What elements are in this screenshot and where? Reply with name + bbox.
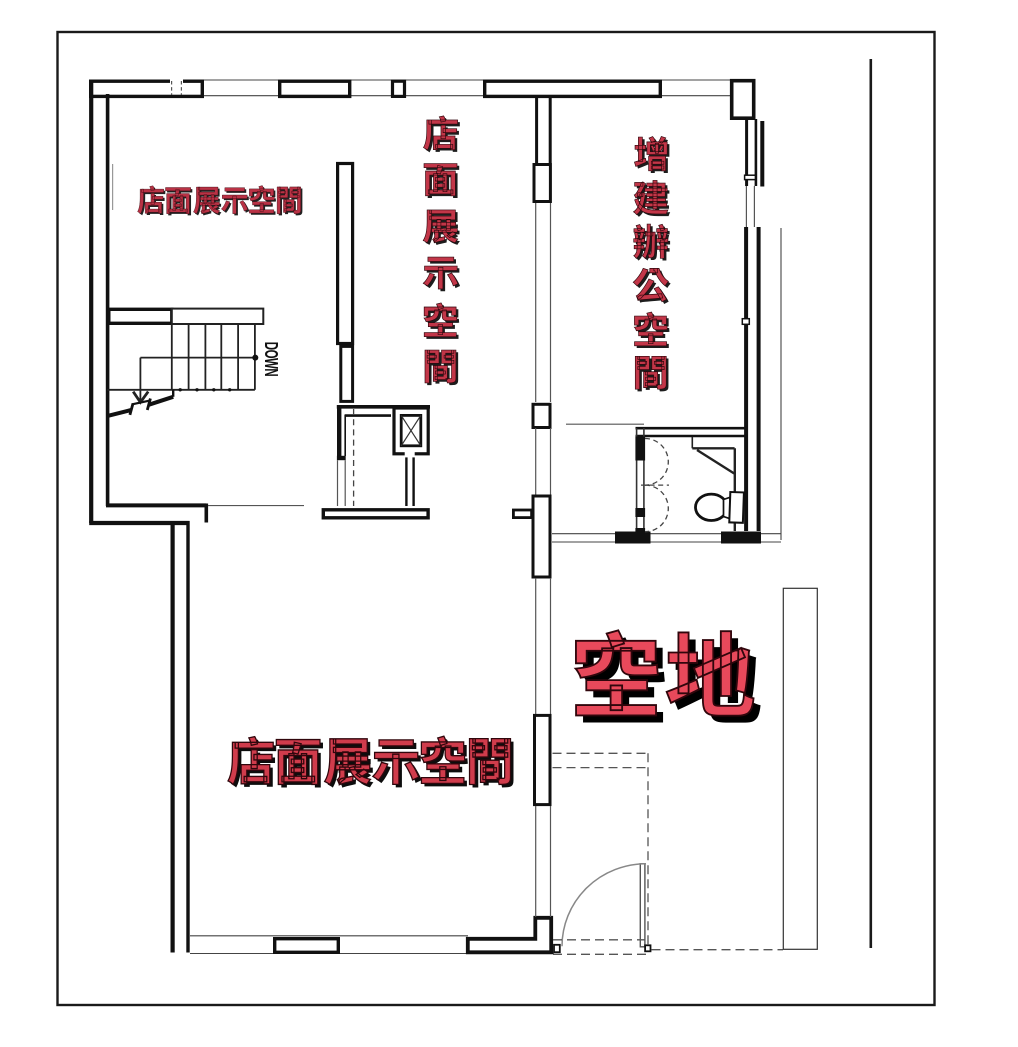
svg-text:DOWN: DOWN xyxy=(260,342,280,377)
